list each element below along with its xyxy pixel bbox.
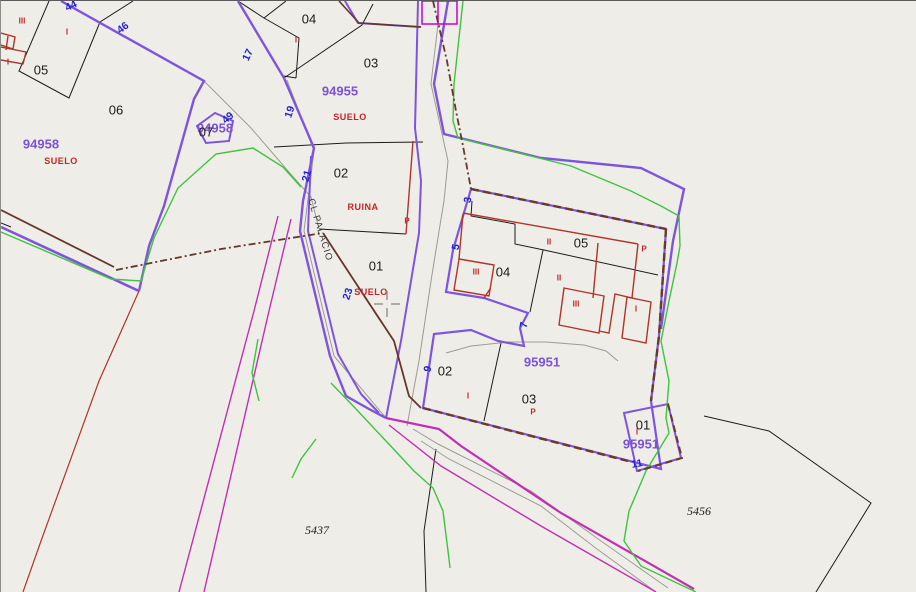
map-label-ii: II [547,238,551,247]
cadastral-map-svg: 9495894958949559595195951050607040302010… [1,1,916,592]
map-label-94958: 94958 [23,137,59,152]
map-label-p: P [404,217,410,226]
map-label-11: 11 [630,457,643,471]
map-label-iii: III [573,300,580,309]
map-label-94955: 94955 [322,84,358,99]
map-label-02: 02 [438,364,452,379]
map-label-p: P [641,245,647,254]
map-label-04: 04 [302,12,316,27]
map-label-i: I [636,428,638,437]
map-label-p: P [530,408,536,417]
map-label-i: I [295,36,297,45]
map-label-07: 07 [199,125,213,140]
map-label-i: I [635,305,637,314]
map-label-06: 06 [109,103,123,118]
map-label-ruina: RUINA [348,202,379,212]
map-label-95951: 95951 [524,355,560,370]
map-label-iii: III [473,268,480,277]
map-label-05: 05 [574,236,588,251]
map-label-03: 03 [522,392,536,407]
map-label-5437: 5437 [305,523,330,537]
map-label-suelo: SUELO [333,112,367,122]
map-label-95951: 95951 [623,437,659,452]
map-label-i: I [7,58,9,67]
map-label-suelo: SUELO [44,156,78,166]
map-label-iii: III [19,17,26,26]
map-label-5456: 5456 [687,504,711,518]
map-label-i: I [467,392,469,401]
map-label-ii: II [557,274,561,283]
map-background [1,1,916,592]
map-label-i: I [66,28,68,37]
map-label-01: 01 [369,259,383,274]
map-label-02: 02 [334,166,348,181]
map-label-04: 04 [496,265,510,280]
map-canvas[interactable]: 9495894958949559595195951050607040302010… [0,0,916,592]
map-label-05: 05 [34,63,48,78]
map-label-suelo: SUELO [354,287,388,297]
map-label-03: 03 [364,56,378,71]
